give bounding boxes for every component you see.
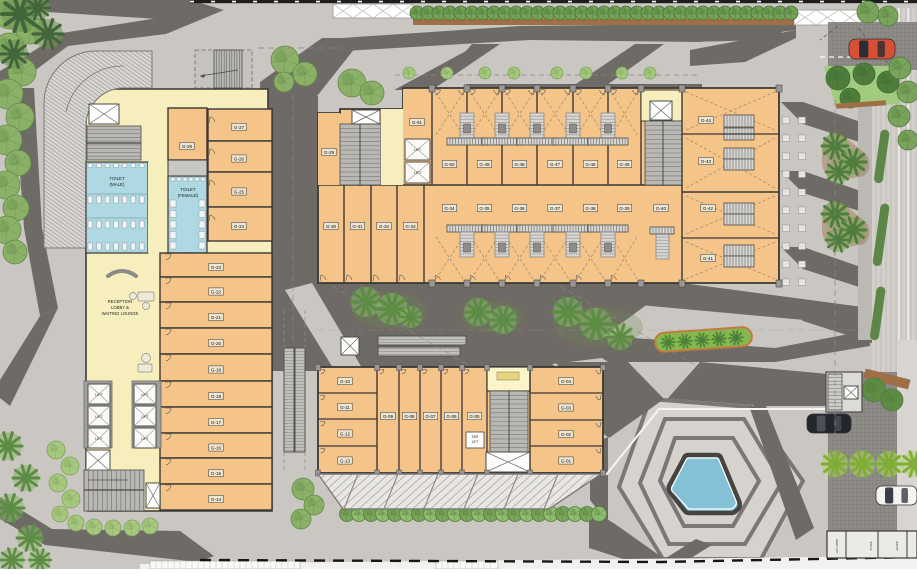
svg-text:G-48: G-48 xyxy=(514,162,525,167)
svg-text:G-07: G-07 xyxy=(425,414,436,419)
svg-text:G-49: G-49 xyxy=(479,162,490,167)
svg-text:LIFT: LIFT xyxy=(414,171,422,175)
svg-text:LIFT: LIFT xyxy=(472,440,479,444)
svg-text:G-43: G-43 xyxy=(701,159,712,164)
svg-text:G-22: G-22 xyxy=(211,289,222,294)
svg-text:G-38: G-38 xyxy=(585,206,596,211)
svg-text:G-19: G-19 xyxy=(211,367,222,372)
svg-text:LIFT: LIFT xyxy=(414,148,422,152)
svg-text:GUARD: GUARD xyxy=(895,541,899,550)
svg-text:G-31: G-31 xyxy=(352,224,363,229)
svg-text:LIFT: LIFT xyxy=(141,393,149,397)
svg-text:LIFT LOBBY: LIFT LOBBY xyxy=(835,538,839,553)
svg-text:G-10: G-10 xyxy=(340,379,351,384)
svg-text:SER: SER xyxy=(472,435,479,439)
svg-text:G-17: G-17 xyxy=(211,420,222,425)
svg-text:G-06: G-06 xyxy=(446,414,457,419)
svg-text:TOILET: TOILET xyxy=(109,176,125,181)
svg-text:G-39: G-39 xyxy=(619,206,630,211)
svg-text:G-14: G-14 xyxy=(211,497,222,502)
svg-text:G-15: G-15 xyxy=(211,471,222,476)
svg-text:G-08: G-08 xyxy=(404,414,415,419)
svg-text:(FEMALE): (FEMALE) xyxy=(178,193,199,198)
svg-text:RECEPTION: RECEPTION xyxy=(108,299,132,304)
svg-text:G-05: G-05 xyxy=(469,414,480,419)
svg-text:G-46: G-46 xyxy=(585,162,596,167)
svg-text:G-18: G-18 xyxy=(211,394,222,399)
svg-text:STORE: STORE xyxy=(869,541,873,550)
svg-text:G-03: G-03 xyxy=(561,405,572,410)
svg-text:G-28: G-28 xyxy=(182,144,193,149)
svg-text:G-20: G-20 xyxy=(211,341,222,346)
svg-text:G-40: G-40 xyxy=(656,206,667,211)
svg-text:G-30: G-30 xyxy=(326,224,337,229)
svg-text:G-26: G-26 xyxy=(234,156,245,161)
svg-text:G-32: G-32 xyxy=(379,224,390,229)
svg-text:G-16: G-16 xyxy=(211,445,222,450)
svg-text:G-11: G-11 xyxy=(340,405,350,410)
svg-text:G-24: G-24 xyxy=(234,224,245,229)
svg-text:G-01: G-01 xyxy=(561,458,572,463)
svg-text:G-21: G-21 xyxy=(211,315,222,320)
svg-text:(MALE): (MALE) xyxy=(110,182,125,187)
svg-text:G-35: G-35 xyxy=(479,206,490,211)
svg-text:LIFT: LIFT xyxy=(141,415,149,419)
svg-text:G-51: G-51 xyxy=(412,120,423,125)
svg-text:G-02: G-02 xyxy=(561,432,572,437)
svg-text:G-42: G-42 xyxy=(703,206,714,211)
svg-text:G-27: G-27 xyxy=(234,125,245,130)
svg-text:G-44: G-44 xyxy=(701,118,712,123)
svg-text:LIFT: LIFT xyxy=(141,437,149,441)
svg-text:LOBBY &: LOBBY & xyxy=(111,305,129,310)
svg-text:G-41: G-41 xyxy=(703,256,714,261)
svg-text:G-12: G-12 xyxy=(340,431,351,436)
svg-text:WAITING LOUNGE: WAITING LOUNGE xyxy=(102,311,139,316)
svg-text:LIFT: LIFT xyxy=(95,415,103,419)
svg-text:G-13: G-13 xyxy=(340,458,351,463)
svg-text:LIFT: LIFT xyxy=(95,393,103,397)
svg-text:G-33: G-33 xyxy=(405,224,416,229)
svg-text:G-04: G-04 xyxy=(561,379,572,384)
svg-text:G-36: G-36 xyxy=(514,206,525,211)
svg-text:TOILET: TOILET xyxy=(180,187,196,192)
svg-text:LIFT: LIFT xyxy=(95,437,103,441)
svg-text:G-29: G-29 xyxy=(324,150,335,155)
svg-text:G-47: G-47 xyxy=(550,162,561,167)
svg-text:G-23: G-23 xyxy=(211,265,222,270)
svg-text:G-50: G-50 xyxy=(444,162,455,167)
svg-text:G-37: G-37 xyxy=(550,206,561,211)
svg-text:G-09: G-09 xyxy=(383,414,394,419)
svg-text:G-45: G-45 xyxy=(619,162,630,167)
svg-text:G-34: G-34 xyxy=(444,206,455,211)
svg-text:G-25: G-25 xyxy=(234,189,245,194)
